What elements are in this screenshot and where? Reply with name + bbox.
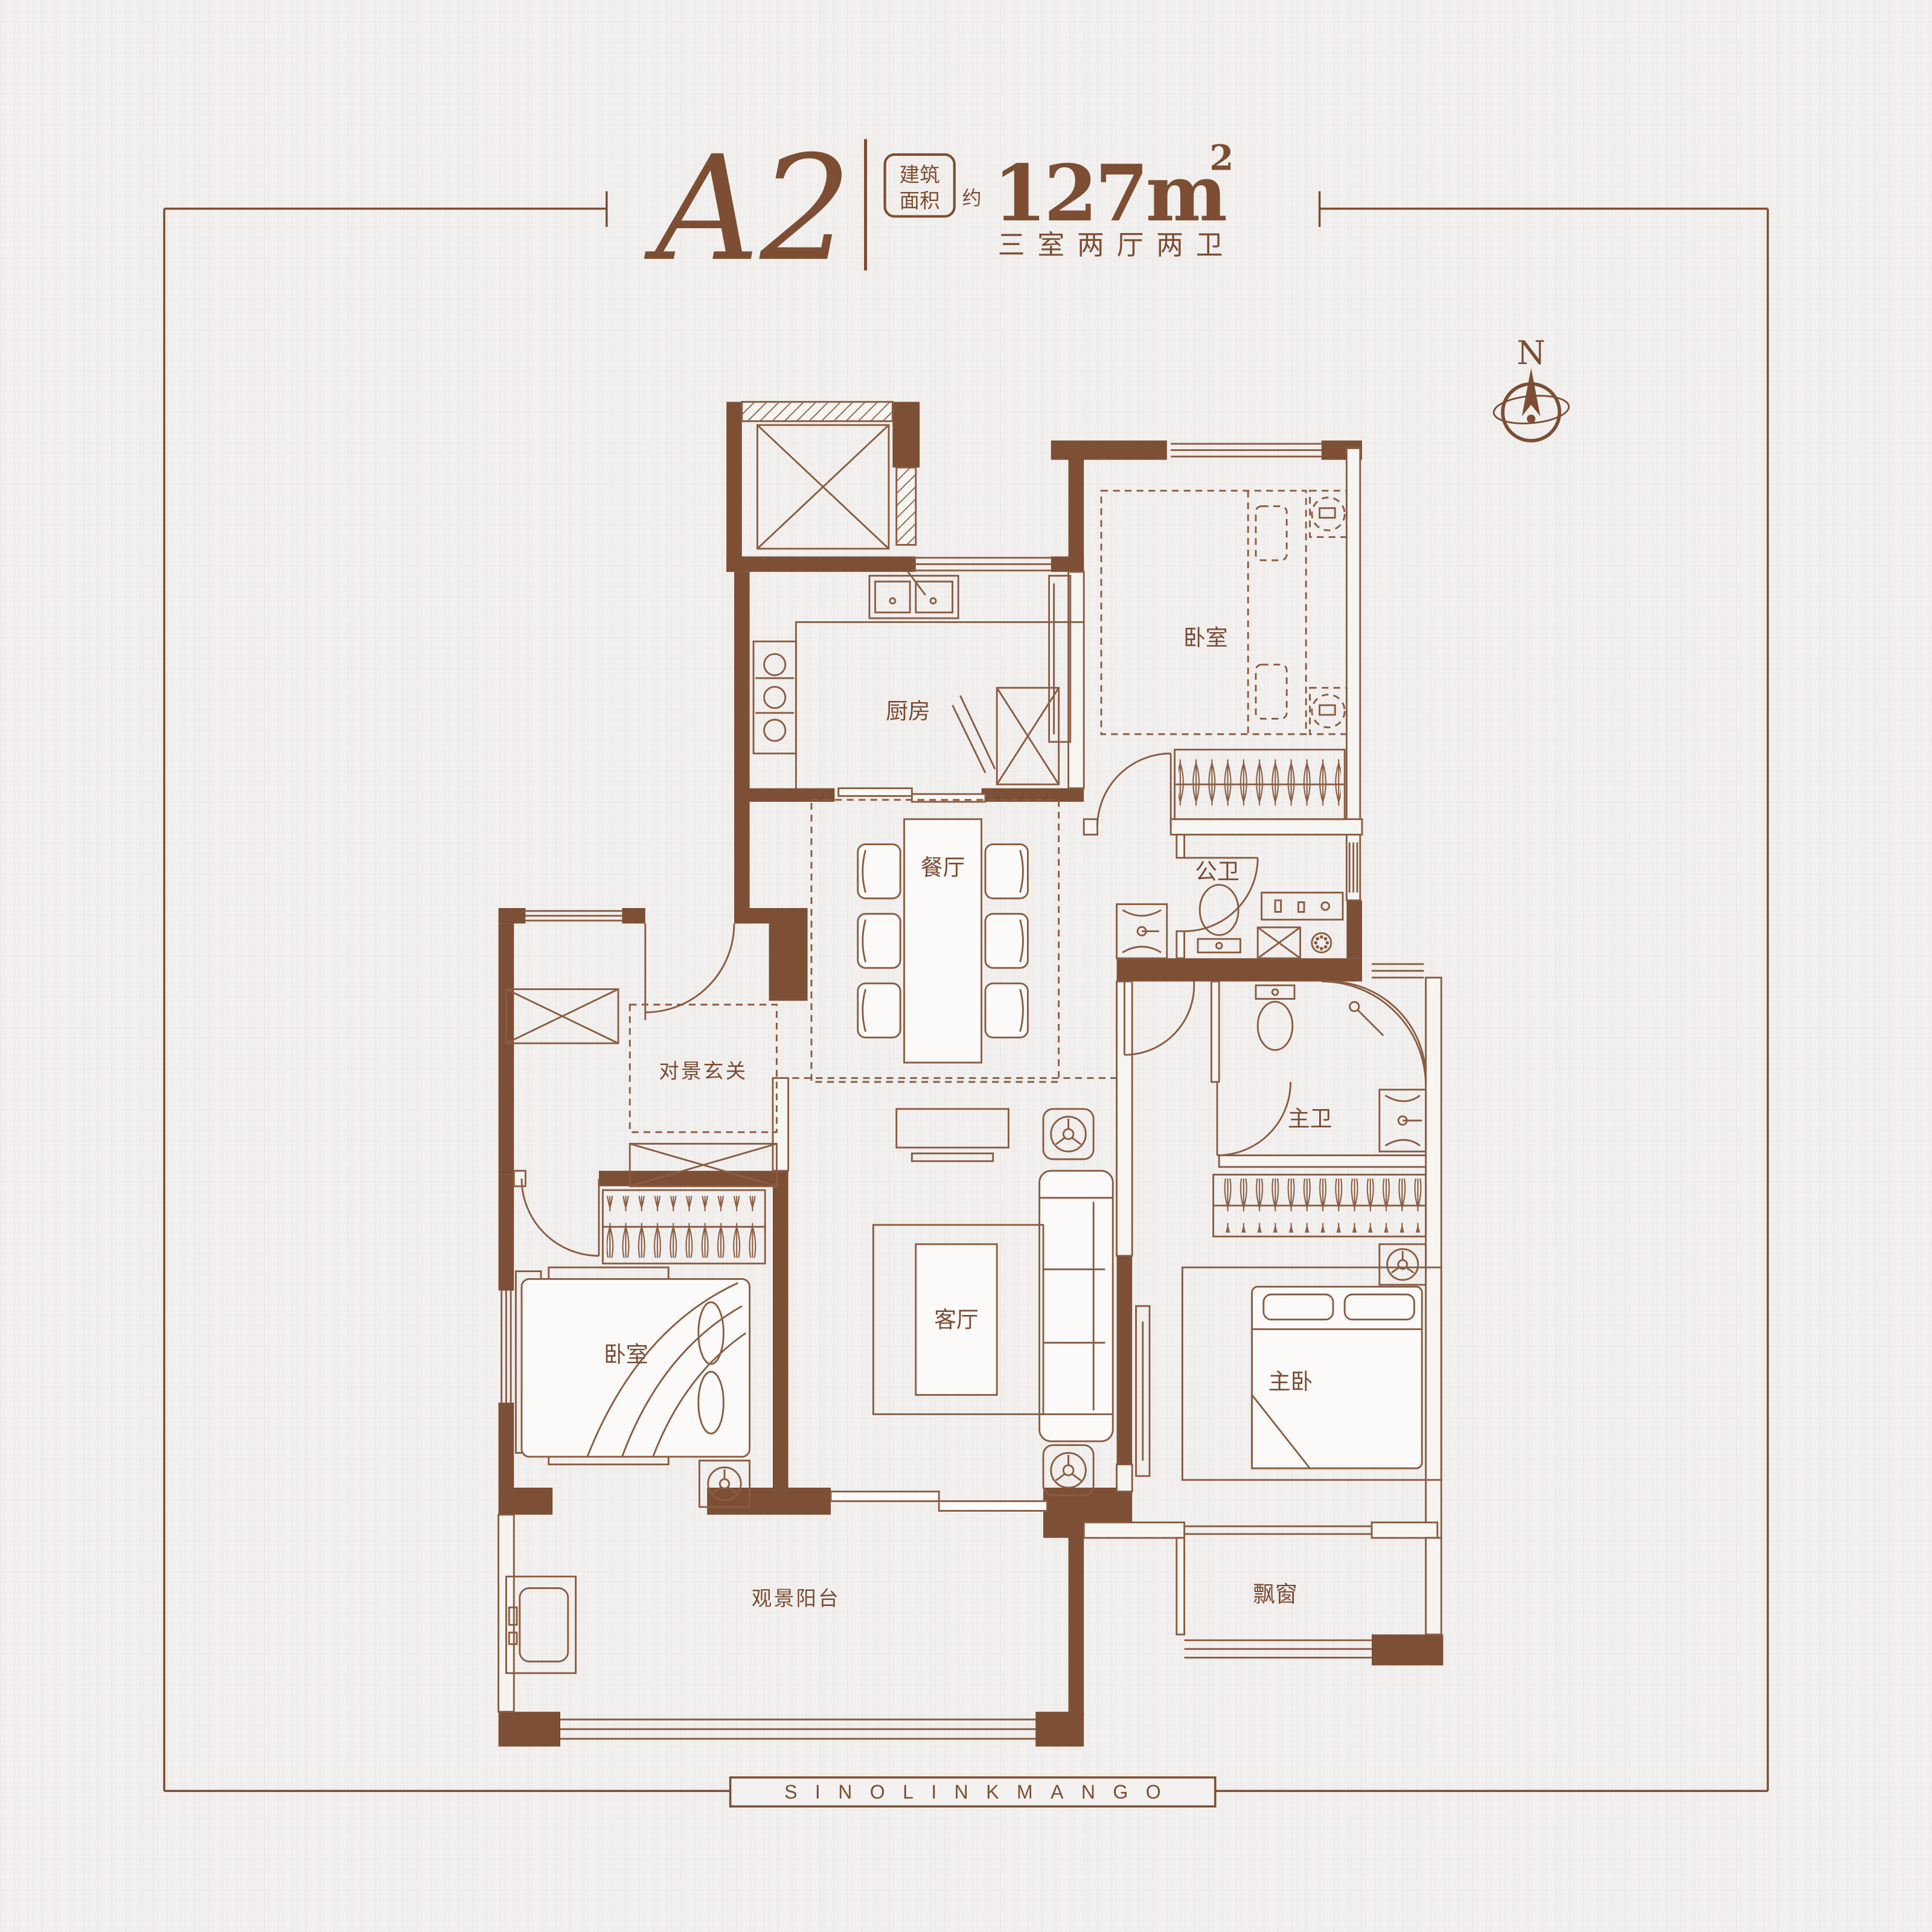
unit-name: A2 xyxy=(644,124,852,293)
kitchen-counter xyxy=(796,622,1084,788)
area-exponent: 2 xyxy=(1209,138,1233,179)
guest-bath-toilet xyxy=(1198,885,1240,953)
label-dining: 餐厅 xyxy=(921,856,965,880)
guest-bath-floor-drain xyxy=(1312,933,1331,953)
compass: N xyxy=(1492,334,1570,441)
area-approx: 约 xyxy=(962,187,982,209)
guest-bath-mirror-cabinet xyxy=(1262,892,1343,920)
west-bedroom-bed xyxy=(522,1279,750,1456)
kitchen-fridge xyxy=(1049,576,1070,742)
shaft-box xyxy=(757,425,889,549)
compass-pivot-icon xyxy=(1527,415,1535,423)
compass-north-label: N xyxy=(1517,334,1546,372)
area-label-line2: 面积 xyxy=(900,190,940,213)
north-bedroom-bed xyxy=(1101,491,1346,734)
partition-walls xyxy=(499,448,1442,1712)
label-foyer: 对景玄关 xyxy=(659,1060,747,1083)
label-bedroom-west: 卧室 xyxy=(604,1342,648,1367)
label-guest-bath: 公卫 xyxy=(1195,859,1239,884)
living-sofa xyxy=(1040,1171,1113,1441)
label-kitchen: 厨房 xyxy=(886,699,930,723)
kitchen-stove xyxy=(753,641,796,753)
label-balcony: 观景阳台 xyxy=(752,1587,840,1610)
label-master-bedroom: 主卧 xyxy=(1268,1369,1313,1394)
label-bay-window: 飘窗 xyxy=(1253,1582,1297,1607)
floor-plan: 厨房 卧室 餐厅 公卫 对景玄关 客厅 主卫 卧室 主卧 观景阳台 飘窗 xyxy=(499,402,1444,1747)
living-floor-lamp-top xyxy=(1043,1109,1093,1159)
label-bedroom-north: 卧室 xyxy=(1183,625,1228,650)
north-bedroom-wardrobe xyxy=(1175,750,1345,819)
master-wardrobe xyxy=(1214,1175,1426,1236)
brand-text: SINOLINKMANGO xyxy=(784,1781,1179,1803)
windows xyxy=(502,444,1424,1739)
guest-bath-laundry-box xyxy=(1258,927,1300,958)
hatched-walls xyxy=(742,402,916,545)
shoe-cabinet-box xyxy=(506,989,618,1043)
master-nightstand xyxy=(1380,1244,1426,1285)
compass-needle-icon xyxy=(1522,368,1541,417)
area-label-line1: 建筑 xyxy=(900,164,940,187)
area-value: 127m xyxy=(993,149,1226,239)
master-bath-shower xyxy=(1322,982,1426,1086)
title-block: A2 建筑 面积 约 127m 2 三室两厅两卫 xyxy=(644,124,1235,293)
floorplan-canvas: A2 建筑 面积 约 127m 2 三室两厅两卫 N xyxy=(0,0,1932,1932)
master-bath-toilet xyxy=(1256,985,1294,1050)
label-master-bath: 主卫 xyxy=(1288,1107,1332,1131)
master-tv-panel xyxy=(1136,1306,1150,1476)
west-bedroom-wardrobe xyxy=(603,1190,765,1264)
label-living: 客厅 xyxy=(934,1307,979,1332)
balcony-washer xyxy=(506,1576,575,1673)
floorplan-page: { "title": { "unit": "A2", "area_box": [… xyxy=(0,0,1932,1932)
structural-walls xyxy=(499,402,1444,1747)
master-bath-vanity xyxy=(1380,1090,1426,1151)
layout-spec: 三室两厅两卫 xyxy=(998,230,1236,260)
kitchen-sink xyxy=(869,572,958,618)
living-tv-console xyxy=(897,1109,1009,1161)
footer-brand: SINOLINKMANGO xyxy=(731,1777,1215,1806)
hall-washbasin xyxy=(1117,904,1167,959)
